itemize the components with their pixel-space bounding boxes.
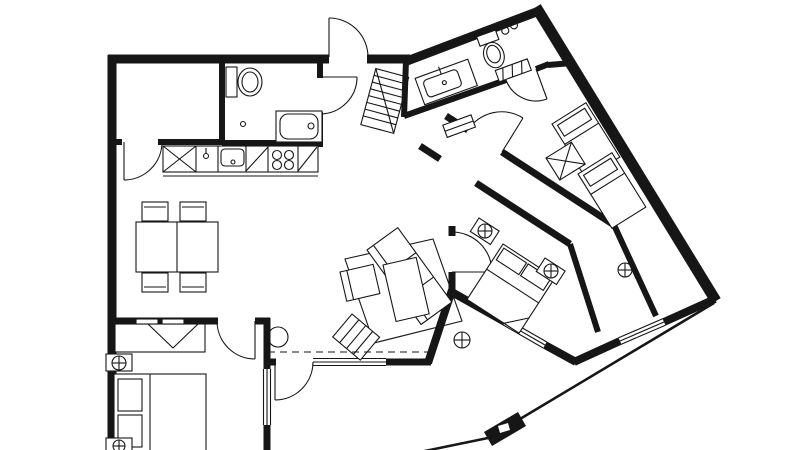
wall-top-diagonal bbox=[407, 11, 539, 61]
kids-door-swing bbox=[468, 112, 523, 130]
wall-kids-terrace-a bbox=[574, 341, 620, 362]
railing-upper bbox=[520, 303, 714, 419]
bathroom-top-left bbox=[226, 67, 322, 142]
wall-bedroom-center-east bbox=[570, 244, 598, 332]
bath1-door-swing bbox=[320, 77, 357, 114]
railing-lower bbox=[420, 438, 488, 450]
kitchen bbox=[163, 146, 318, 176]
wardrobe-handle-2 bbox=[162, 319, 184, 324]
wardrobe-handle-1 bbox=[136, 319, 158, 324]
dining-chair-1 bbox=[142, 202, 168, 221]
bedroom-bottom-left bbox=[106, 319, 206, 450]
bath2-door-leaf bbox=[536, 69, 547, 99]
armchair-1 bbox=[340, 264, 380, 301]
dining-set bbox=[136, 202, 218, 292]
windows bbox=[264, 319, 666, 425]
living-sofa-set bbox=[333, 228, 462, 360]
wall-bath2-east-stub bbox=[548, 63, 572, 65]
column bbox=[268, 327, 288, 347]
floor-plan-page bbox=[0, 0, 800, 450]
wall-bedroom-center-terrace-b bbox=[545, 345, 576, 362]
pillow-1 bbox=[118, 379, 142, 411]
toilet-tank bbox=[226, 67, 237, 97]
terrace-door-swing bbox=[275, 362, 313, 400]
bedroom1-door-swing bbox=[217, 321, 255, 359]
dining-chair-4 bbox=[180, 273, 206, 292]
floor-drain bbox=[241, 122, 246, 127]
storage-door-swing bbox=[124, 142, 162, 180]
kids-door-leaf bbox=[502, 118, 523, 152]
wall-bath2-bottom-b bbox=[536, 64, 549, 69]
floor-plan-drawing bbox=[0, 0, 800, 450]
wardrobe bbox=[115, 324, 205, 352]
dining-chair-2 bbox=[180, 202, 206, 221]
dining-chair-3 bbox=[142, 273, 168, 292]
wall-corridor-sw-a bbox=[420, 146, 440, 159]
entrance-door-swing bbox=[329, 18, 368, 57]
stairs bbox=[361, 69, 409, 134]
